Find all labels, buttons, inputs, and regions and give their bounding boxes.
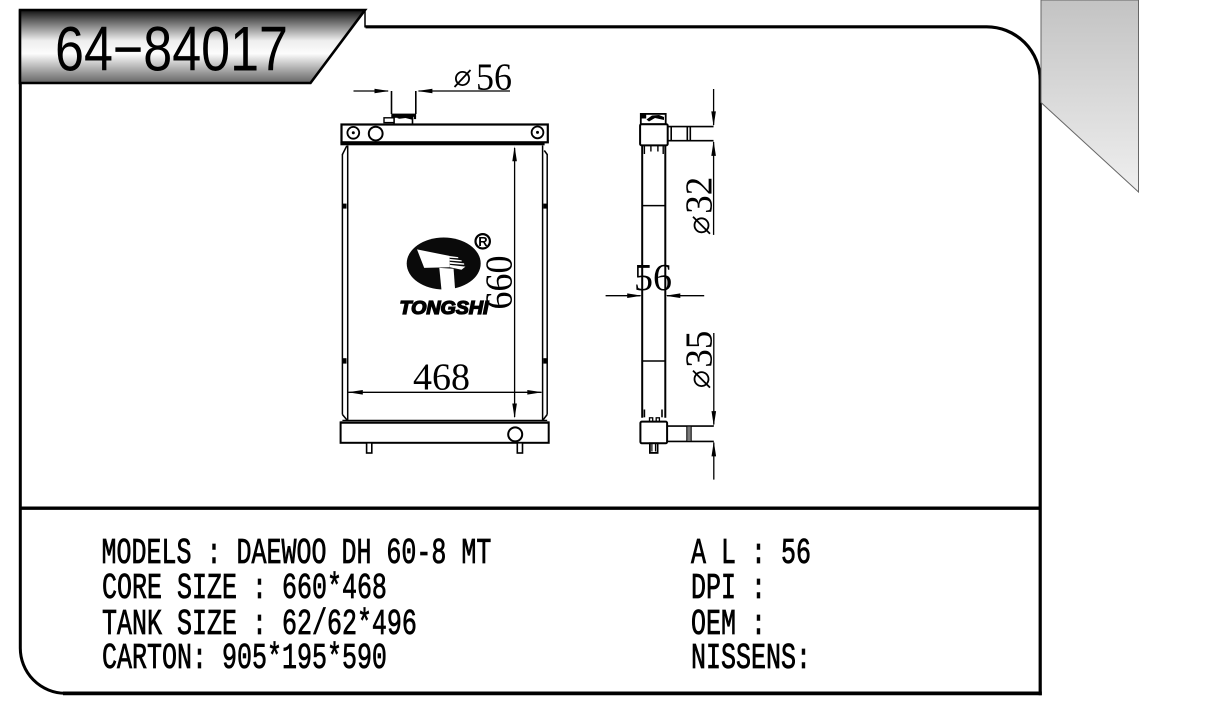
svg-text:CARTON: 905*195*590: CARTON: 905*195*590 <box>102 639 387 680</box>
svg-text:R: R <box>478 234 488 249</box>
svg-text:64−84017: 64−84017 <box>55 15 288 85</box>
svg-text:56: 56 <box>476 57 512 99</box>
svg-text:32: 32 <box>679 177 721 214</box>
svg-text:56: 56 <box>634 257 672 299</box>
svg-text:DPI :: DPI : <box>691 569 766 610</box>
svg-text:CORE SIZE : 660*468: CORE SIZE : 660*468 <box>102 569 387 610</box>
svg-text:TONGSHI: TONGSHI <box>400 298 490 318</box>
svg-text:NISSENS:: NISSENS: <box>691 639 811 680</box>
svg-text:660: 660 <box>479 256 521 310</box>
svg-text:35: 35 <box>679 331 721 368</box>
